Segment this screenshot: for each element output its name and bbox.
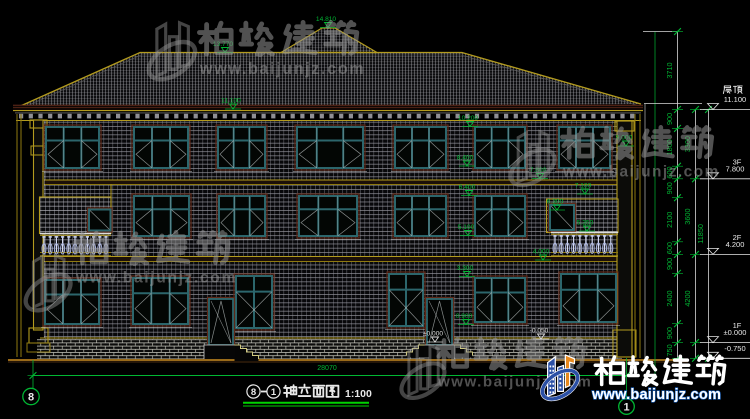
svg-text:4.000: 4.000 <box>533 249 550 256</box>
svg-text:±0.000: ±0.000 <box>423 331 443 338</box>
svg-text:6.300: 6.300 <box>547 199 564 206</box>
svg-text:-0.050: -0.050 <box>530 328 549 335</box>
svg-text:1: 1 <box>271 387 277 398</box>
svg-text:900: 900 <box>665 258 674 270</box>
svg-text:11.100: 11.100 <box>724 95 746 104</box>
svg-text:750: 750 <box>665 344 674 356</box>
svg-text:8: 8 <box>251 387 256 398</box>
svg-text:900: 900 <box>665 113 674 125</box>
svg-text:8: 8 <box>28 392 34 404</box>
svg-text:8.400: 8.400 <box>457 155 474 162</box>
svg-text:6.400: 6.400 <box>459 184 476 191</box>
svg-text:3710: 3710 <box>665 62 674 78</box>
svg-text:-0.750: -0.750 <box>724 344 745 353</box>
svg-text:0.900: 0.900 <box>456 313 473 320</box>
svg-text:10.200: 10.200 <box>458 115 479 122</box>
svg-text:1:100: 1:100 <box>345 388 372 400</box>
svg-text:2100: 2100 <box>665 212 674 228</box>
svg-text:2400: 2400 <box>665 290 674 306</box>
svg-text:7.800: 7.800 <box>726 164 745 173</box>
svg-text:4200: 4200 <box>683 290 692 306</box>
svg-text:www.baijunjz.com: www.baijunjz.com <box>591 387 721 403</box>
svg-text:900: 900 <box>665 182 674 194</box>
svg-text:900: 900 <box>665 327 674 339</box>
svg-text:±0.000: ±0.000 <box>724 328 747 337</box>
svg-text:7.100: 7.100 <box>575 183 592 190</box>
svg-text:5.350: 5.350 <box>577 220 594 227</box>
svg-text:28070: 28070 <box>317 365 337 372</box>
svg-text:14.810: 14.810 <box>316 16 337 23</box>
svg-text:1: 1 <box>623 402 629 414</box>
svg-text:www.baijunjz.com: www.baijunjz.com <box>199 60 365 78</box>
svg-text:11850: 11850 <box>696 224 705 244</box>
svg-text:www.baijunjz.com: www.baijunjz.com <box>562 163 720 180</box>
svg-text:4.200: 4.200 <box>726 240 745 249</box>
svg-text:3600: 3600 <box>683 208 692 224</box>
svg-text:www.baijunjz.com: www.baijunjz.com <box>75 269 237 286</box>
svg-text:600: 600 <box>665 242 674 254</box>
svg-text:11.100: 11.100 <box>221 98 241 105</box>
svg-text:5.100: 5.100 <box>458 224 475 231</box>
svg-text:3.300: 3.300 <box>457 265 474 272</box>
